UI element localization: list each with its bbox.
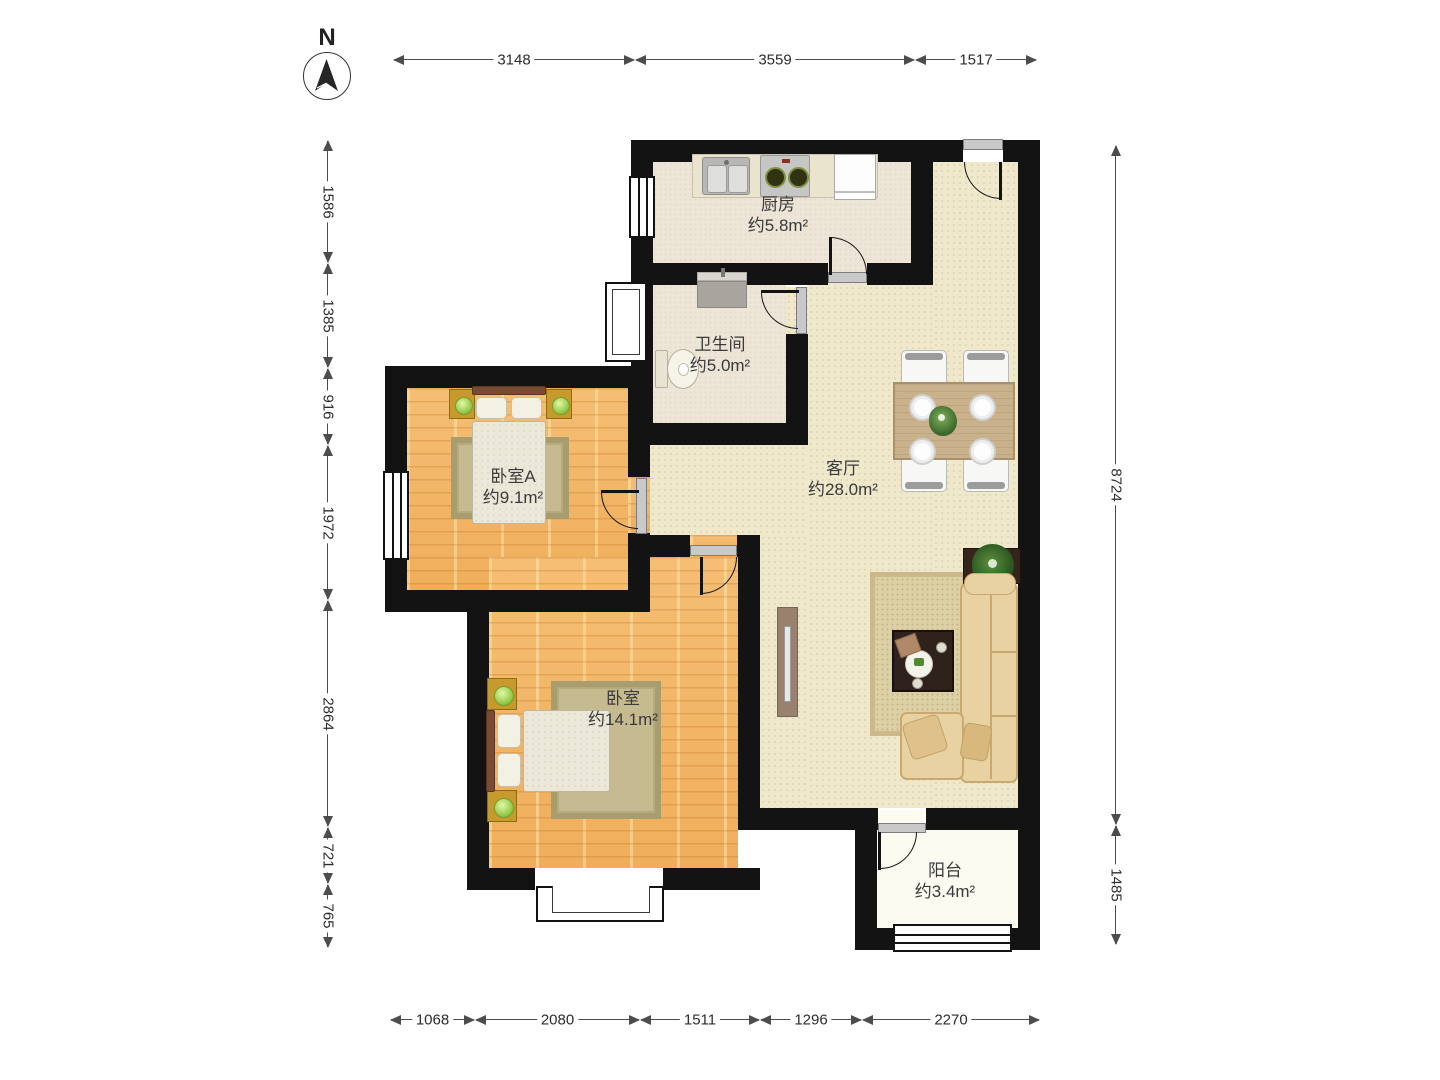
dining-chair (901, 350, 947, 386)
kitchen-stove (760, 155, 810, 197)
wall-bathroom-bottom (631, 423, 808, 445)
dim-bottom-1: 1068 (390, 1012, 475, 1028)
room-label-kitchen: 厨房 约5.8m² (708, 194, 848, 236)
wall-bedroom-a-left-upper (385, 366, 407, 473)
entry-door-panel (999, 162, 1002, 200)
wall-bedroom-bottom-right (663, 868, 760, 890)
wall-living-bottom-right (926, 808, 1040, 830)
dim-left-7: 765 (320, 884, 336, 948)
entry-door-slab (963, 139, 1003, 150)
dim-right-2: 1485 (1108, 825, 1124, 945)
room-label-living: 客厅 约28.0m² (773, 458, 913, 500)
wall-kitchen-right (911, 140, 933, 285)
bedroom-bay-window (536, 886, 664, 922)
wall-bedroom-a-top (385, 366, 650, 388)
room-label-bedroom-a: 卧室A 约9.1m² (443, 466, 583, 508)
wall-balcony-bottom-right (1010, 928, 1040, 950)
tv-stand (777, 607, 798, 717)
dim-right-1: 8724 (1108, 145, 1124, 825)
kitchen-door-panel (829, 237, 832, 275)
dim-top-1: 3148 (393, 52, 635, 68)
bedroom-nightstand-bottom (487, 790, 517, 822)
compass-circle (303, 52, 351, 100)
bathroom-window (605, 282, 647, 362)
dining-plate (969, 438, 996, 465)
wall-bedroom-right (738, 535, 760, 830)
bathroom-shower (697, 272, 747, 308)
dim-left-1: 1586 (320, 140, 336, 263)
bedroom-door-slab (690, 545, 737, 556)
bedroom-a-window (383, 471, 409, 560)
bathroom-door-panel (761, 290, 799, 293)
room-label-balcony: 阳台 约3.4m² (875, 860, 1015, 902)
room-label-bathroom: 卫生间 约5.0m² (650, 334, 790, 376)
bedroom-nightstand-top (487, 678, 517, 710)
north-indicator: N (300, 24, 354, 104)
dining-plate (969, 394, 996, 421)
dining-centerpiece-plant (929, 406, 957, 436)
wall-balcony-bottom-left (855, 928, 895, 950)
room-label-bedroom: 卧室 约14.1m² (553, 688, 693, 730)
balcony-window (893, 924, 1012, 952)
wall-bedroom-a-right-lower (628, 533, 650, 612)
bedroom-a-door-panel (601, 490, 639, 493)
dim-top-3: 1517 (915, 52, 1037, 68)
compass-arrow-icon (304, 53, 349, 98)
dim-left-6: 721 (320, 827, 336, 884)
dim-left-5: 2864 (320, 600, 336, 827)
dim-bottom-5: 2270 (862, 1012, 1040, 1028)
kitchen-sink (702, 157, 750, 195)
wall-bedroom-top-left (650, 535, 690, 557)
bedroom-door-panel (700, 557, 703, 595)
kitchen-window (629, 176, 655, 238)
wall-bedroom-bottom-left (467, 868, 535, 890)
dining-chair (963, 350, 1009, 386)
dim-left-3: 916 (320, 368, 336, 445)
dim-bottom-3: 1511 (640, 1012, 760, 1028)
wall-bedroom-a-right-upper (628, 366, 650, 477)
floorplan-canvas: N (0, 0, 1440, 1080)
dim-bottom-2: 2080 (475, 1012, 640, 1028)
dim-top-2: 3559 (635, 52, 915, 68)
bedroom-a-nightstand-right (546, 389, 572, 419)
coffee-table (892, 630, 954, 692)
dim-left-2: 1385 (320, 263, 336, 368)
wall-bedroom-a-bottom (385, 590, 650, 612)
north-label: N (300, 24, 354, 52)
wall-living-bottom-left (738, 808, 878, 830)
dining-plate (909, 438, 936, 465)
dim-bottom-4: 1296 (760, 1012, 862, 1028)
dim-left-4: 1972 (320, 445, 336, 600)
